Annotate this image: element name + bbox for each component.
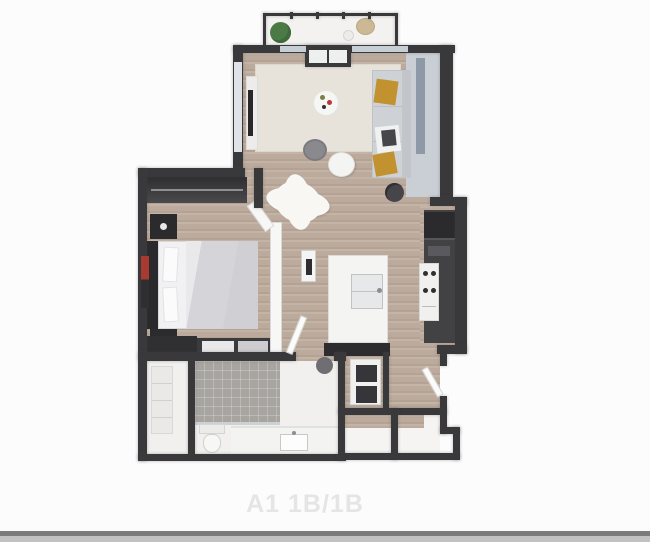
balcony-lounge-chair [356, 18, 375, 35]
linen-shelves [151, 366, 173, 434]
window-glass-left [234, 62, 242, 152]
burner [431, 288, 436, 293]
vanity-sink [280, 434, 308, 451]
faucet [292, 431, 296, 435]
shelf-line [152, 400, 172, 401]
round-accent-rug [303, 139, 327, 161]
wall-bedroom-top [138, 168, 245, 177]
washer-door [356, 365, 377, 382]
wall-bathroom-right [338, 352, 345, 460]
decor-vase [322, 105, 326, 109]
bed-pillow [162, 287, 179, 323]
balcony-side-table [343, 30, 354, 41]
wall-linen-divider [188, 361, 195, 454]
burner [423, 271, 428, 276]
balcony-railing-left [263, 13, 266, 45]
island-sink [351, 274, 383, 309]
shelf-line [152, 383, 172, 384]
footer-divider-shadow [0, 536, 650, 542]
coat-closet-woodstrip [345, 415, 391, 428]
kitchen-island [328, 255, 388, 343]
wall-artwork [141, 256, 149, 308]
dryer-door [356, 386, 377, 403]
sofa-backrest [402, 70, 411, 178]
sofa-pillow-mustard-bottom [372, 151, 397, 176]
sofa-cushion-line [373, 106, 402, 107]
floor-plant [385, 183, 404, 202]
bed-blanket [186, 241, 258, 329]
balcony-plant [270, 22, 291, 43]
faucet [377, 288, 382, 293]
wall-entry-right-upper [440, 352, 447, 366]
wall-bottom-left [138, 454, 346, 461]
sofa-throw-blanket [375, 125, 402, 153]
range-stove [419, 263, 439, 321]
storage-closet-woodstrip [398, 415, 424, 428]
railing-post [368, 12, 371, 19]
closet-rod [151, 189, 243, 191]
window-glass-top-left [280, 46, 306, 52]
window-glass-top-right [352, 46, 408, 52]
floorplan-image: A1 1B/1B [0, 0, 650, 542]
decor-table [313, 90, 339, 116]
railing-post [290, 12, 293, 19]
balcony-door-divider [327, 50, 329, 63]
window-glass-right [416, 58, 425, 154]
countertop-appliance [428, 246, 450, 256]
toilet-bowl [203, 434, 221, 453]
coffee-table [328, 152, 355, 177]
wall-kitchen-right [455, 197, 467, 354]
laundry-closet-wall [383, 352, 389, 412]
balcony-railing-top [263, 13, 398, 16]
oven-door-line [422, 306, 436, 307]
burner [423, 288, 428, 293]
refrigerator [424, 212, 455, 240]
sofa-pillow-dark [381, 129, 397, 146]
nightstand-top [150, 214, 177, 239]
tv [248, 90, 253, 136]
toilet-tank [199, 424, 225, 434]
wall-tv [301, 250, 316, 282]
shower [195, 361, 280, 422]
dresser-drawer [202, 341, 234, 352]
plan-label: A1 1B/1B [230, 490, 380, 520]
wall-living-right [440, 45, 453, 197]
wall-bottom-right [338, 453, 460, 460]
railing-post [342, 12, 345, 19]
bed-pillow [162, 247, 179, 283]
wall-left-outer [138, 168, 147, 461]
wall-kitchen-bottom [437, 345, 467, 354]
shelf-line [152, 417, 172, 418]
vanity [231, 426, 338, 454]
wall-bathroom-top-left [138, 352, 296, 361]
bedroom-partition-wall [270, 222, 282, 357]
balcony-railing-right [395, 13, 398, 45]
washer-dryer [350, 359, 381, 405]
decor-greenery [320, 95, 325, 100]
railing-post [316, 12, 319, 19]
wardrobe-closet [147, 177, 247, 203]
decor-flower [327, 100, 332, 105]
burner [431, 271, 436, 276]
wall-living-jog [254, 168, 263, 208]
table-lamp [160, 223, 167, 230]
stool [316, 357, 333, 374]
wall-tv-screen [306, 259, 312, 275]
sofa-pillow-mustard-top [373, 79, 398, 106]
dresser-drawer [238, 341, 268, 352]
